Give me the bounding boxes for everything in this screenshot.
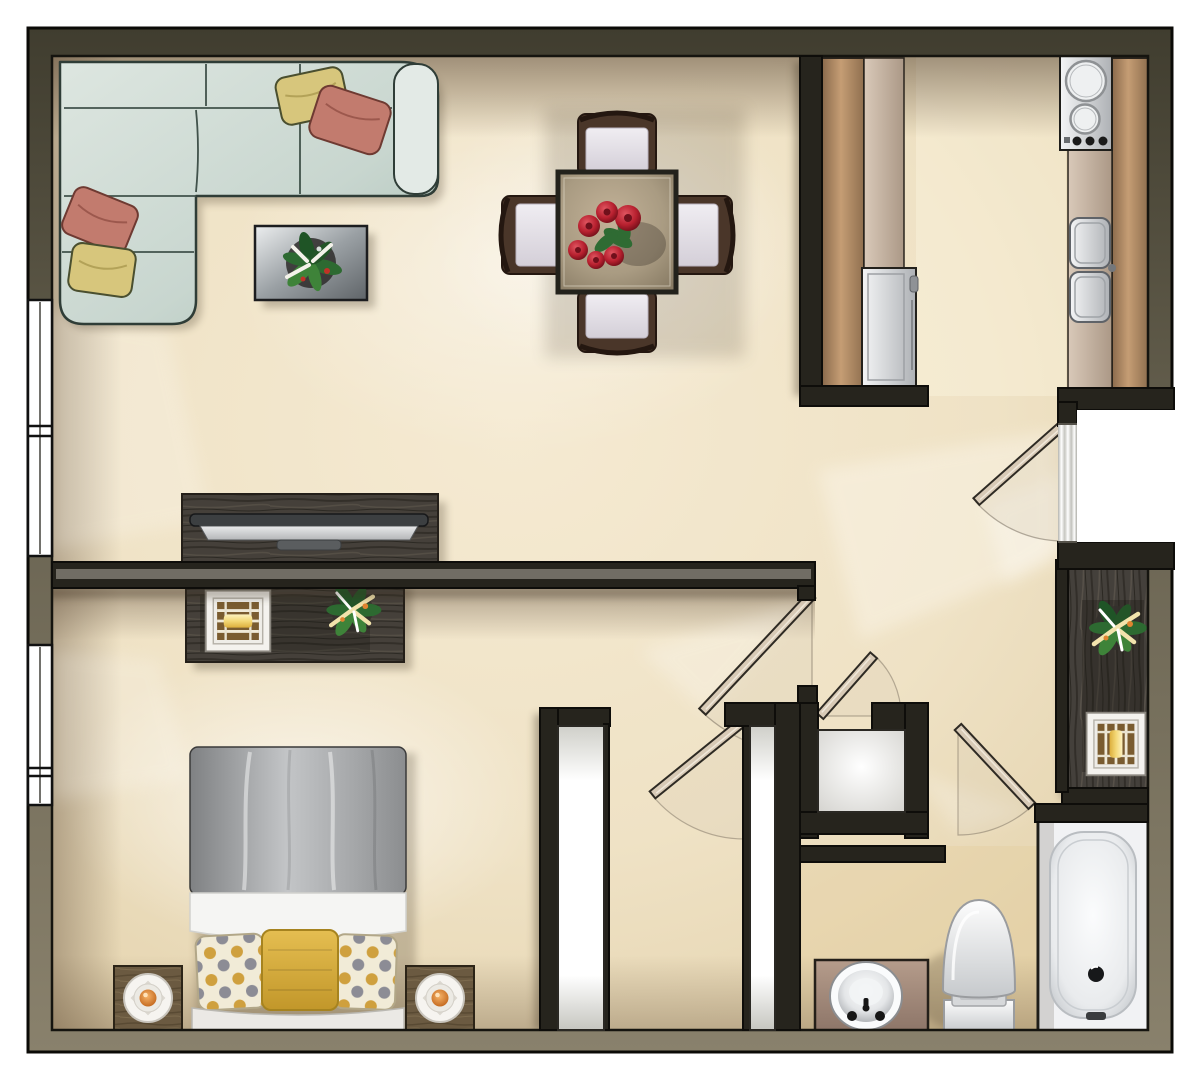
- nightstand-lamp: [416, 974, 464, 1022]
- entry-jamb: [1058, 542, 1174, 569]
- closet-wall: [540, 708, 558, 1030]
- floor-plan-canvas: [0, 0, 1200, 1089]
- bathroom-wall: [1035, 804, 1148, 822]
- refrigerator: [862, 268, 918, 386]
- kitchen-divider-wall: [800, 56, 822, 390]
- polka-dot-pillow: [195, 933, 267, 1010]
- floor-plan: [0, 0, 1200, 1089]
- nightstand-left: [114, 966, 182, 1032]
- entry-opening: [1058, 410, 1200, 542]
- table-lamp: [1087, 713, 1146, 776]
- coffee-table: [255, 226, 367, 300]
- refrigerator-handle: [910, 276, 918, 292]
- wall-core-line: [56, 569, 811, 579]
- bed: [190, 747, 406, 1030]
- bathroom-wall: [800, 846, 945, 862]
- closet-wall: [775, 703, 800, 1030]
- linen-closet-wall: [800, 812, 928, 834]
- closet-door: [750, 726, 775, 1030]
- burner: [1071, 105, 1100, 134]
- vanity-sink: [830, 962, 902, 1030]
- hall-console: [1060, 568, 1150, 798]
- kitchen-counter-right: [1060, 50, 1148, 388]
- dining-chair-north: [578, 113, 656, 176]
- nightstand-right: [406, 966, 474, 1032]
- tv-console: [182, 494, 438, 562]
- console-nook-wall: [1056, 560, 1068, 792]
- entry-threshold: [1058, 424, 1077, 542]
- closet-door: [558, 726, 604, 1030]
- nightstand-lamp: [124, 974, 172, 1022]
- table-lamp: [206, 591, 271, 652]
- throw-pillow-yellow: [67, 242, 137, 298]
- kitchen-divider-cap: [800, 386, 928, 406]
- window-bedroom: [28, 645, 52, 805]
- bathtub: [1038, 818, 1148, 1032]
- mustard-pillow: [262, 930, 338, 1010]
- linen-closet: [818, 730, 905, 812]
- dining-chair-east: [670, 196, 733, 274]
- kitchen-counter-left: [822, 58, 918, 388]
- bathroom-vanity: [815, 960, 928, 1032]
- console-nook-wall: [1062, 788, 1148, 804]
- dining-chair-west: [501, 196, 564, 274]
- burner: [1066, 61, 1106, 101]
- polka-dot-pillow: [333, 934, 398, 1010]
- sofa-armrest: [394, 64, 438, 194]
- faucet: [1108, 264, 1116, 272]
- dining-table: [558, 172, 676, 292]
- dining-chair-south: [578, 290, 656, 353]
- cooktop: [1060, 50, 1112, 150]
- window-living-room: [28, 300, 52, 556]
- tub-faucet: [1086, 1012, 1106, 1020]
